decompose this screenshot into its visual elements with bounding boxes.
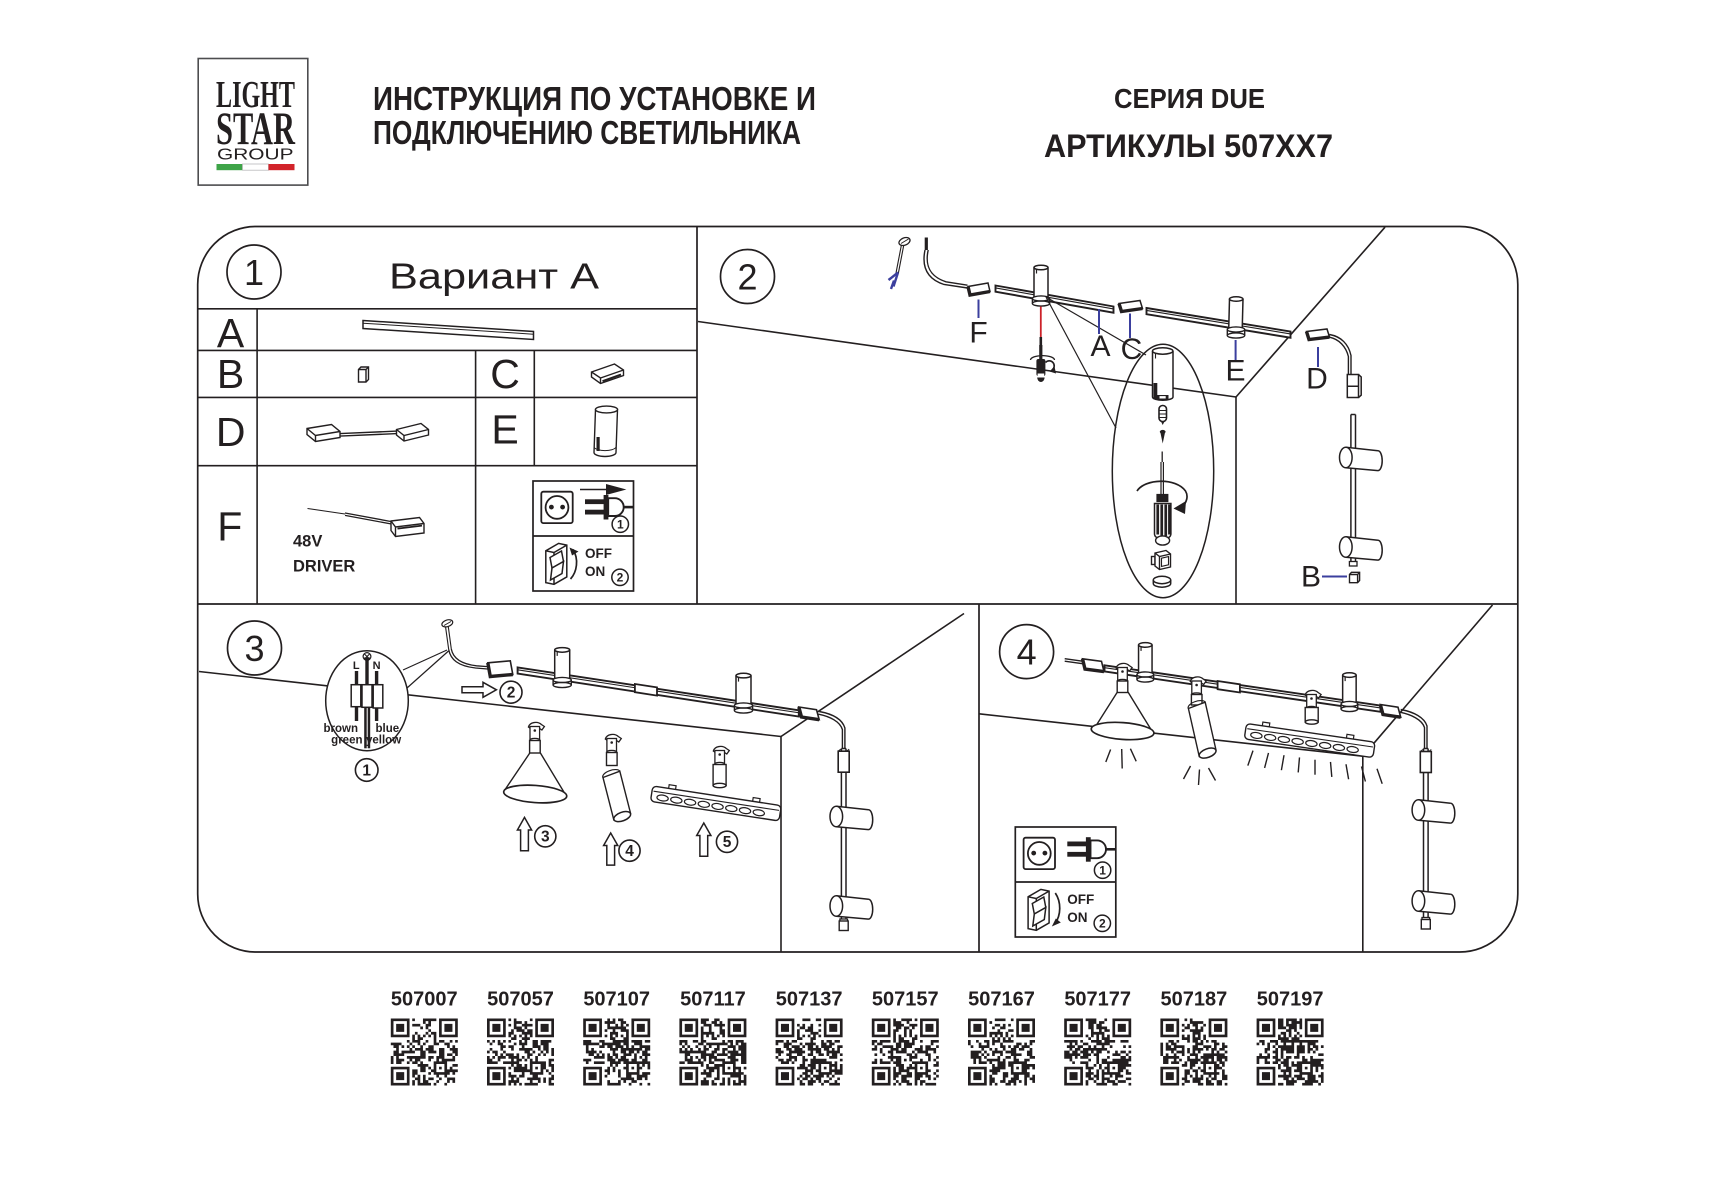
svg-text:507157: 507157 <box>872 989 939 1011</box>
svg-text:B: B <box>217 351 244 397</box>
svg-text:507187: 507187 <box>1161 989 1228 1011</box>
svg-text:2: 2 <box>1099 917 1106 931</box>
svg-text:507167: 507167 <box>968 989 1035 1011</box>
svg-text:yellow: yellow <box>366 735 401 747</box>
svg-text:1: 1 <box>617 518 624 532</box>
svg-text:507137: 507137 <box>776 989 843 1011</box>
svg-text:F: F <box>217 503 242 549</box>
svg-text:1: 1 <box>362 763 371 780</box>
svg-text:ON: ON <box>585 564 605 579</box>
svg-text:D: D <box>216 409 246 455</box>
svg-text:D: D <box>1306 363 1328 396</box>
svg-text:GROUP: GROUP <box>217 147 294 164</box>
svg-text:L: L <box>353 660 360 672</box>
svg-text:E: E <box>1225 355 1245 388</box>
svg-text:A: A <box>1090 330 1110 363</box>
svg-text:N: N <box>373 660 381 672</box>
svg-text:E: E <box>491 407 518 453</box>
svg-text:A: A <box>217 310 245 356</box>
svg-text:OFF: OFF <box>585 546 612 561</box>
svg-text:507107: 507107 <box>583 989 650 1011</box>
svg-text:C: C <box>1121 333 1143 366</box>
svg-text:ИНСТРУКЦИЯ ПО УСТАНОВКЕ И: ИНСТРУКЦИЯ ПО УСТАНОВКЕ И <box>373 80 816 117</box>
svg-text:3: 3 <box>244 628 264 669</box>
svg-text:АРТИКУЛЫ 507XX7: АРТИКУЛЫ 507XX7 <box>1044 128 1333 164</box>
svg-text:507117: 507117 <box>680 989 746 1011</box>
svg-text:3: 3 <box>541 829 550 846</box>
svg-text:DRIVER: DRIVER <box>293 558 355 576</box>
svg-text:2: 2 <box>737 257 757 298</box>
svg-text:4: 4 <box>1017 632 1037 673</box>
svg-text:507197: 507197 <box>1257 989 1324 1011</box>
svg-text:Вариант А: Вариант А <box>389 256 599 297</box>
svg-text:2: 2 <box>617 571 624 585</box>
svg-text:green: green <box>331 735 362 747</box>
svg-text:48V: 48V <box>293 533 322 551</box>
svg-text:OFF: OFF <box>1067 892 1094 907</box>
svg-text:507057: 507057 <box>487 989 554 1011</box>
svg-text:СЕРИЯ DUE: СЕРИЯ DUE <box>1114 83 1265 114</box>
svg-text:brown: brown <box>324 723 359 735</box>
svg-text:507007: 507007 <box>391 989 458 1011</box>
svg-text:ПОДКЛЮЧЕНИЮ СВЕТИЛЬНИКА: ПОДКЛЮЧЕНИЮ СВЕТИЛЬНИКА <box>373 114 801 151</box>
svg-text:F: F <box>969 317 987 350</box>
svg-text:1: 1 <box>244 252 264 293</box>
svg-text:4: 4 <box>625 843 634 860</box>
svg-text:blue: blue <box>376 723 400 735</box>
svg-text:507177: 507177 <box>1064 989 1131 1011</box>
svg-text:ON: ON <box>1067 910 1087 925</box>
svg-text:2: 2 <box>507 685 516 702</box>
svg-text:1: 1 <box>1099 864 1106 878</box>
svg-text:C: C <box>490 351 520 397</box>
svg-text:B: B <box>1301 561 1321 594</box>
svg-text:5: 5 <box>723 834 732 851</box>
